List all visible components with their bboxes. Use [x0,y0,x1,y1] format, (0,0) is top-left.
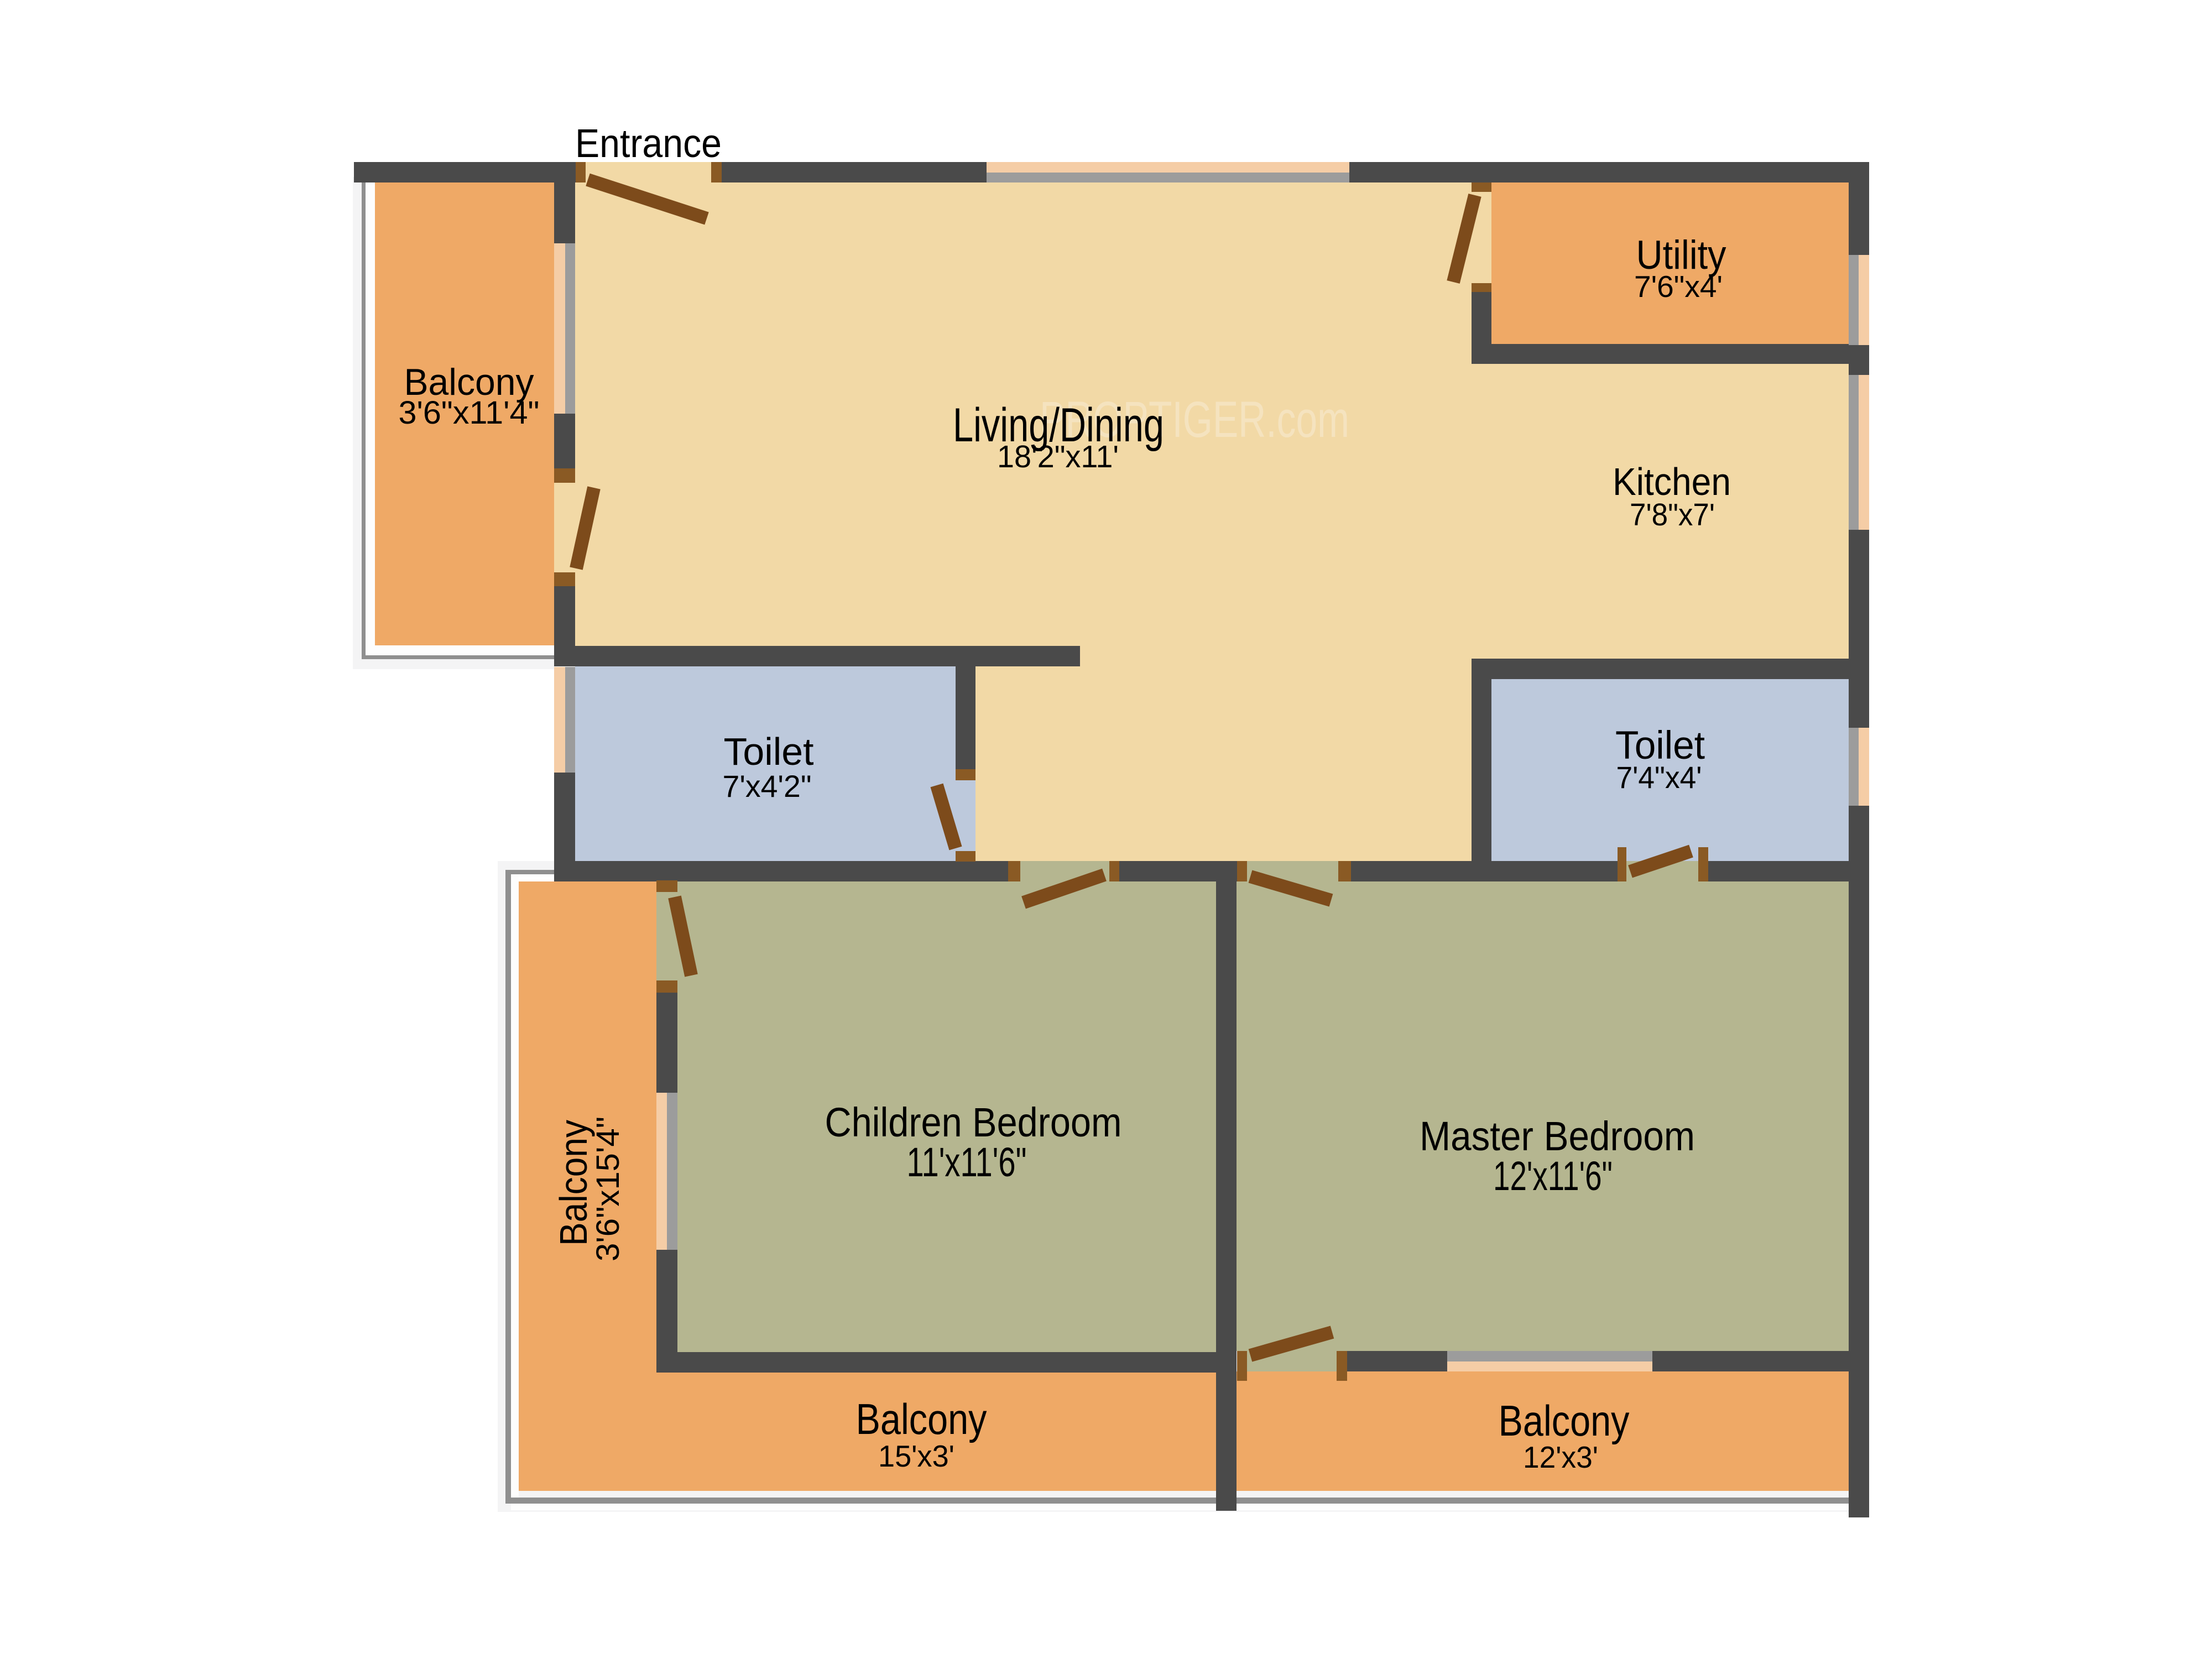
svg-text:3'6"x15'4": 3'6"x15'4" [590,1117,626,1261]
svg-text:Master Bedroom: Master Bedroom [1420,1113,1695,1159]
svg-text:Toilet: Toilet [724,730,814,773]
svg-text:7'4"x4': 7'4"x4' [1616,760,1702,795]
svg-text:7'8"x7': 7'8"x7' [1630,497,1715,533]
svg-text:Children Bedroom: Children Bedroom [825,1099,1122,1145]
svg-text:3'6"x11'4": 3'6"x11'4" [399,395,540,431]
svg-text:Entrance: Entrance [575,122,722,166]
svg-text:12'x3': 12'x3' [1523,1440,1598,1474]
svg-text:15'x3': 15'x3' [878,1439,954,1473]
svg-text:11'x11'6": 11'x11'6" [907,1139,1027,1185]
svg-text:Balcony: Balcony [1499,1396,1630,1445]
svg-text:Balcony: Balcony [856,1395,987,1443]
svg-text:12'x11'6": 12'x11'6" [1493,1153,1613,1199]
svg-text:18'2"x11': 18'2"x11' [997,439,1119,474]
svg-text:7'6"x4': 7'6"x4' [1634,269,1723,304]
svg-text:7'x4'2": 7'x4'2" [723,769,812,804]
svg-text:Balcony: Balcony [552,1120,595,1246]
